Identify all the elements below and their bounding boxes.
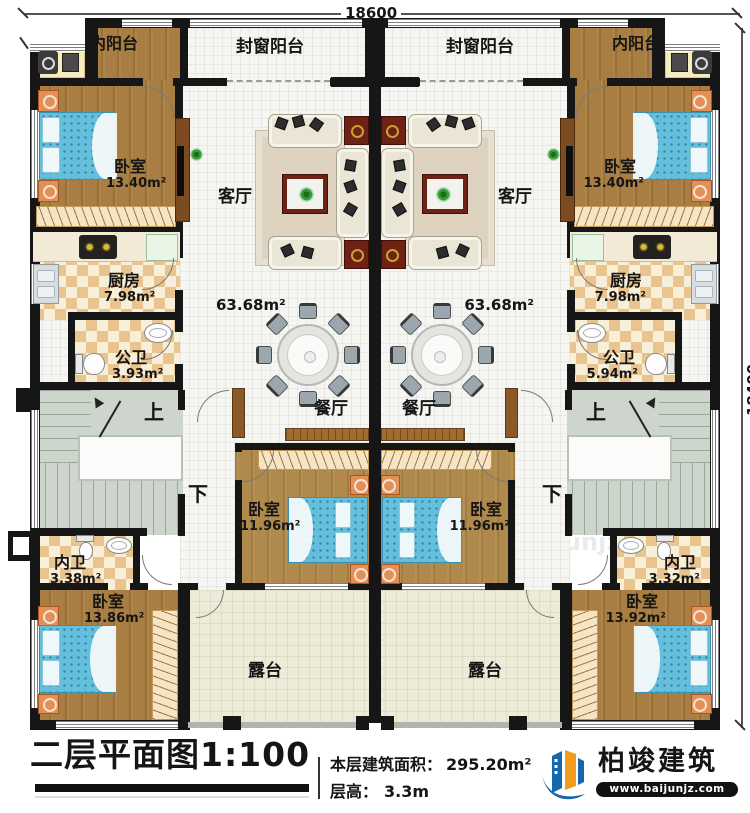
wall (130, 583, 148, 590)
pillow (42, 147, 60, 173)
stair-label-up: 上 (144, 402, 164, 422)
wall (175, 290, 183, 320)
chair (256, 346, 272, 364)
nightstand (691, 90, 712, 112)
dimension-right-value: 18400 (744, 360, 750, 420)
window (122, 19, 172, 27)
room-label-bedroom: 卧室 (626, 594, 658, 610)
toilet-tank (75, 354, 83, 374)
bed (635, 625, 711, 693)
stove-icon (79, 235, 117, 259)
logo-icon (538, 744, 592, 802)
room-label-dining: 餐厅 (314, 401, 348, 418)
dimension-tick (734, 719, 745, 730)
nightstand (691, 694, 712, 714)
wall-opening (227, 80, 330, 82)
room-label-bedroom: 卧室 (470, 502, 502, 518)
sink-basin (695, 286, 713, 298)
pillow (335, 532, 351, 558)
cabinet-icon (671, 53, 688, 72)
room-label-living: 客厅 (218, 189, 252, 206)
toilet-icon (83, 353, 105, 375)
wall-pier (223, 716, 241, 730)
nightstand (691, 180, 712, 202)
corner-table (344, 116, 369, 145)
sofa-pillow (393, 159, 406, 172)
wall (552, 583, 572, 590)
room-area: 13.40m² (584, 177, 644, 190)
wall (235, 443, 242, 452)
kitchen-sink (33, 264, 59, 304)
wall (567, 382, 720, 390)
logo-url: www.baijunjz.com (596, 782, 738, 797)
wall (178, 583, 198, 590)
room-label-bedroom: 卧室 (92, 594, 124, 610)
dimension-line-right (741, 28, 743, 728)
room-label-bedroom: 卧室 (248, 502, 280, 518)
title-underline (35, 784, 309, 792)
dimension-tick (734, 22, 745, 33)
fridge-icon (146, 234, 178, 261)
floorplan-sheet: 柏竣建筑 柏竣建筑 www.baijunjz.com www.baijunjz.… (0, 0, 750, 813)
floor-height-value: 3.3m (384, 784, 429, 800)
wardrobe (572, 610, 598, 720)
terrace-parapet (188, 722, 369, 728)
entry-door (232, 388, 245, 438)
wall (508, 443, 515, 452)
sink-icon (618, 537, 644, 554)
dining-table (277, 324, 339, 386)
wall (133, 535, 140, 583)
door-arc (142, 555, 172, 585)
room-area-living: 63.68m² (464, 298, 534, 313)
room-label-dining: 餐厅 (402, 401, 436, 418)
wall (567, 364, 575, 390)
wall (567, 86, 575, 118)
bed (39, 625, 115, 693)
wall (30, 78, 143, 86)
unit-left: 内阳台 封窗阳台 卧室 13.40m² 客厅 63.68m² 厨房 7.98m²… (30, 18, 369, 730)
wall-pier (381, 716, 394, 730)
floor-plan: 内阳台 封窗阳台 卧室 13.40m² 客厅 63.68m² 厨房 7.98m²… (30, 18, 720, 730)
room-label-sealed-balcony: 封窗阳台 (236, 39, 304, 56)
room-label-inner-balcony: 内阳台 (90, 36, 138, 52)
sink-icon (106, 537, 132, 554)
plant-icon (436, 187, 451, 202)
stair-label-down: 下 (542, 484, 562, 504)
pillow (690, 147, 708, 173)
nightstand (350, 564, 369, 584)
nightstand (350, 475, 369, 495)
dining-table-center (434, 351, 446, 363)
room-label-bedroom: 卧室 (604, 159, 636, 175)
wall (567, 312, 682, 320)
room-label-living: 客厅 (498, 189, 532, 206)
window (662, 44, 720, 52)
window (711, 410, 719, 528)
floor-height-label: 层高： (330, 784, 378, 800)
nightstand (381, 475, 400, 495)
nightstand (381, 564, 400, 584)
dining-table (411, 324, 473, 386)
blanket-fold (634, 626, 660, 692)
wall-pier (509, 716, 527, 730)
room-area: 11.96m² (450, 520, 510, 533)
stair-arrow (99, 400, 122, 437)
wall-opening (420, 80, 523, 82)
chair (299, 303, 317, 319)
unit-right: 内阳台 封窗阳台 卧室 13.40m² 客厅 63.68m² 厨房 7.98m²… (381, 18, 720, 730)
floor-area-value: 295.20m² (446, 757, 531, 773)
bed (39, 112, 116, 180)
wall (602, 583, 620, 590)
wall (178, 494, 185, 536)
wall (567, 320, 575, 332)
room-label-inner-bath: 内卫 (54, 555, 86, 571)
logo-name: 柏竣建筑 (598, 748, 718, 775)
pillow (335, 502, 351, 528)
room-area: 3.38m² (50, 573, 101, 586)
room-label-sealed-balcony: 封窗阳台 (446, 39, 514, 56)
wall (173, 78, 227, 86)
window (190, 19, 362, 27)
nightstand (38, 180, 59, 202)
sink-basin (37, 270, 55, 282)
blanket-fold (90, 626, 116, 692)
window (711, 620, 719, 708)
dimension-tick (19, 37, 29, 50)
nightstand (38, 694, 59, 714)
wall (485, 583, 524, 590)
stair-label-up: 上 (586, 402, 606, 422)
sofa-pillow (344, 159, 357, 172)
wardrobe (152, 610, 178, 720)
washer-icon (38, 51, 58, 74)
wall-pier-inner (13, 537, 29, 555)
plant-icon (190, 148, 203, 161)
wall (508, 480, 515, 590)
wardrobe (258, 450, 369, 470)
wardrobe (574, 206, 714, 227)
pillow (399, 502, 415, 528)
fridge-icon (572, 234, 604, 261)
window (56, 721, 178, 729)
title-underline-thin (35, 796, 309, 798)
pillow (42, 660, 60, 686)
wall (675, 320, 682, 390)
tv-icon (177, 146, 184, 196)
window (572, 721, 694, 729)
floor-area-label: 本层建筑面积： (330, 757, 442, 773)
stair-landing (567, 435, 672, 481)
nightstand (691, 606, 712, 626)
stove-icon (633, 235, 671, 259)
corner-table (344, 240, 369, 269)
wall (560, 590, 572, 723)
wall (68, 320, 75, 390)
wall (523, 78, 577, 86)
window (578, 19, 628, 27)
wall (30, 382, 183, 390)
sink-bowl (111, 541, 127, 550)
pillow (42, 630, 60, 656)
chair (390, 346, 406, 364)
plant-icon (547, 148, 560, 161)
room-area: 13.92m² (606, 612, 666, 625)
party-wall-arm (331, 77, 419, 87)
wall (607, 78, 720, 86)
sink-basin (37, 286, 55, 298)
wall (235, 480, 242, 590)
wall (565, 390, 572, 410)
toilet-icon (645, 353, 667, 375)
terrace-parapet (381, 722, 562, 728)
room-area: 3.32m² (649, 573, 700, 586)
window (265, 583, 348, 590)
tv-icon (566, 146, 573, 196)
cabinet-icon (62, 53, 79, 72)
wall (175, 320, 183, 332)
stair-arrow (629, 400, 652, 437)
toilet-tank (667, 354, 675, 374)
sideboard (285, 428, 369, 441)
corner-table (381, 240, 406, 269)
sideboard (381, 428, 465, 441)
pillow (42, 117, 60, 143)
dining-table-center (304, 351, 316, 363)
sheet-title: 二层平面图1:100 (30, 738, 310, 771)
wall (178, 590, 190, 723)
wall (175, 364, 183, 390)
wall (381, 443, 515, 450)
plant-icon (299, 187, 314, 202)
room-label-kitchen: 厨房 (610, 273, 642, 289)
door-arc (578, 555, 608, 585)
kitchen-sink (691, 264, 717, 304)
room-area: 3.93m² (112, 368, 163, 381)
room-area: 13.40m² (106, 177, 166, 190)
party-wall-stub (365, 18, 385, 77)
room-area: 5.94m² (587, 368, 638, 381)
bed (634, 112, 711, 180)
window (402, 583, 485, 590)
wall (68, 312, 183, 320)
wall (175, 86, 183, 118)
coffee-table (422, 174, 468, 214)
toilet-tank (76, 535, 94, 542)
wall (565, 494, 572, 536)
corner-table (381, 116, 406, 145)
party-wall (369, 18, 381, 723)
window (711, 110, 719, 198)
wall (381, 583, 402, 590)
stair-landing (78, 435, 183, 481)
toilet-tank (656, 535, 674, 542)
entry-door (505, 388, 518, 438)
blanket-fold (633, 113, 658, 179)
pillow (690, 117, 708, 143)
nightstand (38, 90, 59, 112)
room-label-inner-balcony: 内阳台 (612, 36, 660, 52)
sink-basin (695, 270, 713, 282)
sink-bowl (623, 541, 639, 550)
room-area: 7.98m² (104, 291, 155, 304)
window (31, 410, 39, 528)
washer-icon (692, 51, 712, 74)
pillow (690, 630, 708, 656)
room-area: 11.96m² (240, 520, 300, 533)
wall (226, 583, 265, 590)
room-label-bedroom: 卧室 (114, 159, 146, 175)
chair (478, 346, 494, 364)
wall (348, 583, 369, 590)
room-area-living: 63.68m² (216, 298, 286, 313)
room-label-public-bath: 公卫 (115, 350, 147, 366)
window (388, 19, 560, 27)
wall (610, 535, 617, 583)
room-label-public-bath: 公卫 (603, 350, 635, 366)
wall-pier (356, 716, 369, 730)
room-label-terrace: 露台 (468, 663, 502, 680)
stair-label-down: 下 (188, 484, 208, 504)
wardrobe (36, 206, 176, 227)
room-area: 7.98m² (595, 291, 646, 304)
wall (567, 290, 575, 320)
wall (235, 443, 369, 450)
chair (344, 346, 360, 364)
room-label-terrace: 露台 (248, 663, 282, 680)
room-area: 13.86m² (84, 612, 144, 625)
room-label-kitchen: 厨房 (108, 273, 140, 289)
pillow (690, 660, 708, 686)
wall (178, 390, 185, 410)
nightstand (38, 606, 59, 626)
pillow (399, 532, 415, 558)
chair (433, 303, 451, 319)
room-label-inner-bath: 内卫 (664, 555, 696, 571)
coffee-table (282, 174, 328, 214)
title-separator (318, 757, 320, 799)
